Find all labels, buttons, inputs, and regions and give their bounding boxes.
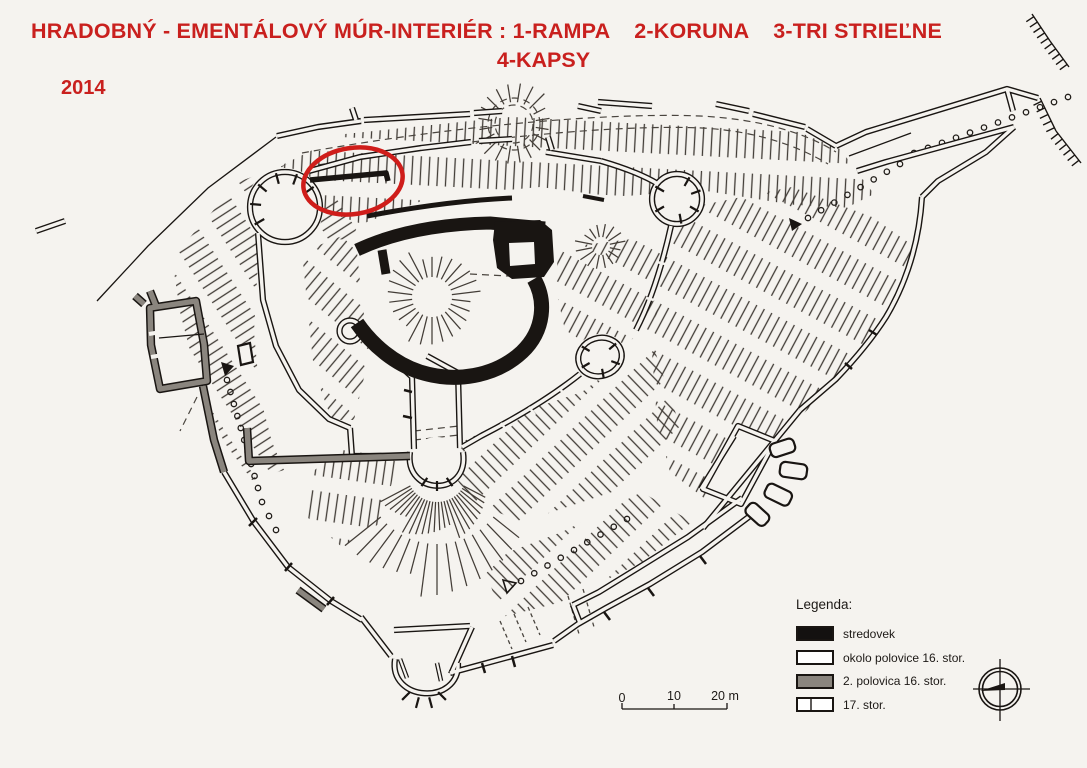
page-subtitle: 4-KAPSY [0,48,1087,73]
scale-label-20m: 20 m [711,689,739,703]
legend-item: okolo polovice 16. stor. [796,646,965,670]
scale-label-10: 10 [667,689,681,703]
legend-swatch-stredovek [796,626,834,641]
compass-rose-icon [973,659,1030,721]
legend-item-label: 17. stor. [843,698,886,712]
legend-item: stredovek [796,622,965,646]
legend-item-label: 2. polovica 16. stor. [843,674,946,688]
legend-item-label: okolo polovice 16. stor. [843,651,965,665]
legend-item: 17. stor. [796,693,965,717]
legend-item: 2. polovica 16. stor. [796,669,965,693]
legend-swatch-17-stor [796,697,834,712]
legend-item-label: stredovek [843,627,895,641]
page-title: HRADOBNÝ - EMENTÁLOVÝ MÚR-INTERIÉR : 1-R… [31,19,942,44]
scale-bar: 0 10 20 m [619,689,739,709]
legend-heading: Legenda: [796,597,965,622]
legend-swatch-okolo-polovice-16-stor [796,650,834,665]
castle-plan-page: 0 10 20 m HRADOBNÝ - EMENTÁLOVÝ MÚR-INTE… [0,0,1087,768]
legend: Legenda: stredovek okolo polovice 16. st… [796,597,965,717]
year-label: 2014 [61,77,106,100]
legend-swatch-2-polovica-16-stor [796,674,834,689]
scale-label-0: 0 [619,691,626,705]
